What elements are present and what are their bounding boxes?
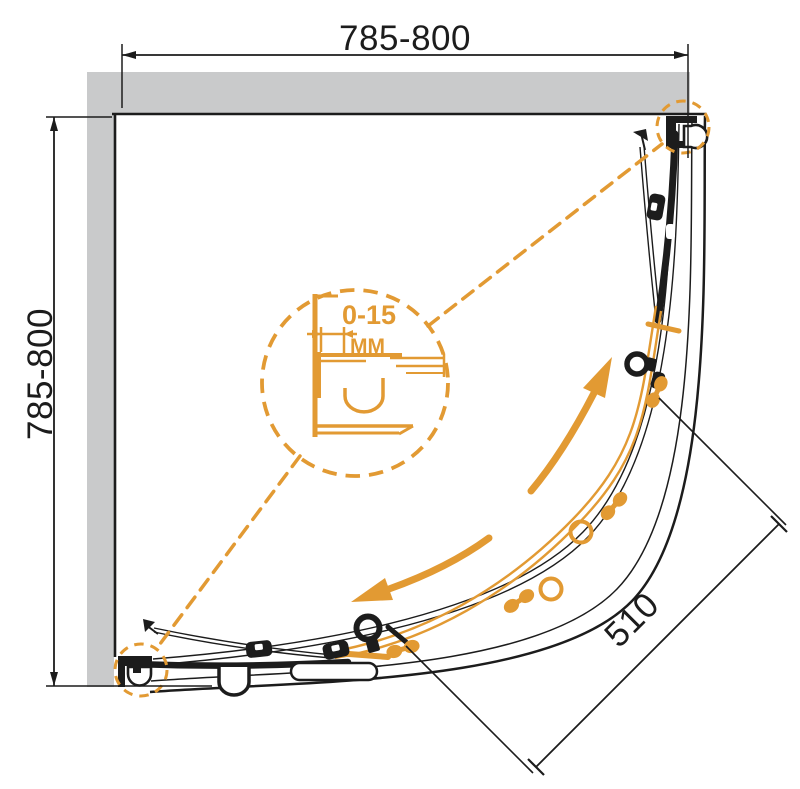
glass-end-flag-bottom-pole [146, 625, 158, 634]
dim-diagonal-label: 510 [597, 585, 667, 655]
rail-clamp-top [646, 193, 666, 221]
detail-range-label: 0-15 [342, 300, 396, 330]
corner-profile-top-right [666, 116, 707, 148]
track-slot-top [666, 224, 675, 239]
dim-top-arrow-right [674, 51, 688, 59]
slide-arrow-down-head [351, 578, 393, 602]
dim-top-label: 785-800 [339, 19, 471, 58]
dim-left-arrow-top [50, 117, 58, 131]
fixed-glass-bottom-line-a [154, 628, 333, 655]
door-glass-arc-outer [335, 311, 661, 658]
dimension-diagonal: 510 [406, 398, 787, 775]
door-roller-ring-2 [541, 579, 562, 600]
bottom-guide-hook [219, 667, 249, 695]
door-stop-bottom [388, 627, 406, 642]
profile-bl-step [133, 664, 141, 673]
dimension-left: 785-800 [21, 117, 212, 686]
left-wall-band [87, 72, 114, 687]
inset-profile-hook [345, 378, 383, 412]
walls [87, 72, 706, 687]
rail-clamp-bottom-left [245, 640, 273, 659]
leader-line-bottom-left [157, 456, 300, 648]
leader-line-top-right [428, 144, 662, 326]
slide-arrows [351, 357, 612, 602]
door-track-solid-sections [133, 134, 675, 695]
profile-tr-bar [666, 116, 697, 123]
door-knob-top [627, 354, 647, 374]
corner-profile-bottom-left [118, 656, 152, 687]
detail-unit-label: MM [350, 335, 385, 358]
rail-outer-inner-arc [151, 120, 692, 681]
dim-top-arrow-left [122, 51, 136, 59]
profile-tr-step [676, 141, 685, 148]
fixed-glass-top-line-b [640, 147, 655, 311]
dim-left-label: 785-800 [21, 308, 60, 440]
dim-diag-ext-2 [406, 646, 533, 773]
enclosure-plan-svg: 0-15 MM 785-800 785-800 510 [0, 0, 800, 789]
roller-housing-bottom [291, 663, 377, 680]
door-roller-ring-1 [571, 522, 592, 543]
top-wall-band [87, 72, 690, 115]
dim-left-arrow-bottom [50, 672, 58, 686]
fixed-glass-panels [143, 129, 659, 658]
fixed-glass-bottom-line-b [154, 632, 331, 658]
detail-inset: 0-15 MM [307, 294, 444, 437]
slide-arrow-down-shaft [389, 538, 489, 589]
slide-arrow-up-shaft [531, 393, 594, 491]
dim-diag-line [536, 524, 779, 767]
hardware [245, 193, 670, 661]
drawing-sheet: 0-15 MM 785-800 785-800 510 [0, 0, 800, 789]
slide-arrow-up-head [583, 357, 612, 398]
